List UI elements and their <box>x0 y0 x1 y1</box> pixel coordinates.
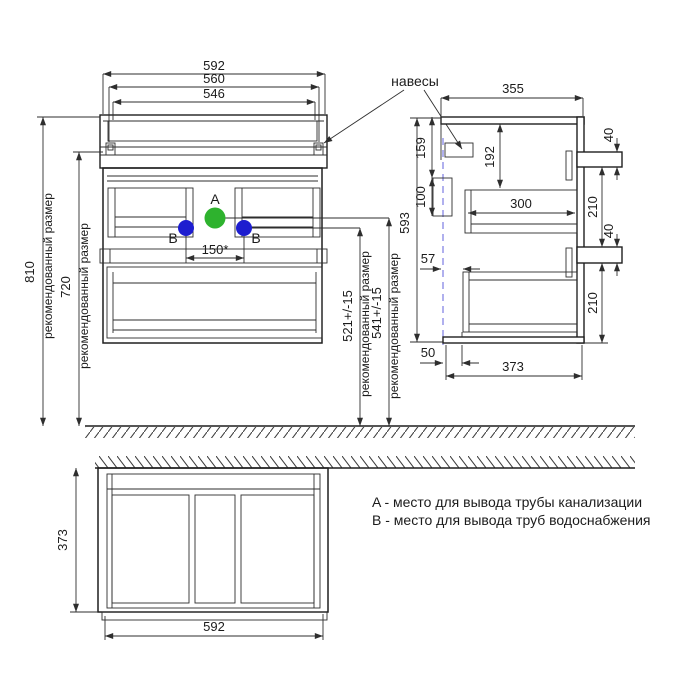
pipe-a-marker <box>205 208 226 229</box>
dim-373-bottom-label: 373 <box>55 529 70 551</box>
bottom-compartment-right <box>241 495 314 603</box>
dim-40-bottom-label: 40 <box>601 224 616 238</box>
dim-57-label: 57 <box>421 251 435 266</box>
pipe-b-right-label: B <box>251 230 260 246</box>
drawer-bottom <box>107 267 322 338</box>
side-top-panel <box>441 117 584 124</box>
legend-line-a: A - место для вывода трубы канализации <box>372 494 642 510</box>
dim-100-label: 100 <box>413 186 428 208</box>
side-bottom-panel <box>443 337 584 343</box>
pipe-b-left-marker <box>178 220 194 236</box>
dim-150-label: 150* <box>202 242 229 257</box>
dim-592-bottom-label: 592 <box>203 619 225 634</box>
legend: A - место для вывода трубы канализации B… <box>372 494 651 528</box>
dim-541-label: 541+/-15 <box>369 287 384 339</box>
dim-541-note: рекомендованный размер <box>387 253 401 399</box>
side-drawer-lower <box>463 272 577 332</box>
drawing-canvas: 592 560 546 810 рекомендованный размер 7… <box>0 0 700 700</box>
pipe-b-left-label: B <box>168 230 177 246</box>
pipe-b-right-marker <box>236 220 252 236</box>
hangers-label: навесы <box>391 73 439 89</box>
dim-50-label: 50 <box>421 345 435 360</box>
dim-810-label: 810 <box>22 261 37 283</box>
countertop <box>100 115 327 168</box>
dim-40-top-label: 40 <box>601 128 616 142</box>
dim-720-note: рекомендованный размер <box>77 223 91 369</box>
dim-720-label: 720 <box>58 276 73 298</box>
bottom-compartment-middle <box>195 495 235 603</box>
dim-210-top-label: 210 <box>585 196 600 218</box>
bottom-view: 373 592 <box>55 456 635 640</box>
dim-560-label: 560 <box>203 71 225 86</box>
dim-593-label: 593 <box>397 212 412 234</box>
dim-159-label: 159 <box>413 137 428 159</box>
dim-192-label: 192 <box>482 146 497 168</box>
dim-355-label: 355 <box>502 81 524 96</box>
bottom-compartment-left <box>112 495 189 603</box>
side-handle-top <box>577 152 622 167</box>
technical-drawing-vanity-cabinet: 592 560 546 810 рекомендованный размер 7… <box>0 0 700 700</box>
floor-line <box>85 426 635 438</box>
dim-210-bottom-label: 210 <box>585 292 600 314</box>
dim-810-note: рекомендованный размер <box>41 193 55 339</box>
side-handle-bottom <box>577 247 622 263</box>
front-left-dimensions: 810 рекомендованный размер 720 рекомендо… <box>22 117 103 426</box>
pipe-markers: 150* A B B 521+/-15 рекомендованный разм… <box>168 191 401 426</box>
legend-line-b: B - место для вывода труб водоснабжения <box>372 512 651 528</box>
front-view <box>100 115 327 343</box>
dim-521-label: 521+/-15 <box>340 290 355 342</box>
side-front-panel <box>577 117 584 343</box>
dim-373-side-label: 373 <box>502 359 524 374</box>
pipe-a-label: A <box>210 191 220 207</box>
dim-546-label: 546 <box>203 86 225 101</box>
dim-300-label: 300 <box>510 196 532 211</box>
bottom-view-outline <box>98 468 328 612</box>
